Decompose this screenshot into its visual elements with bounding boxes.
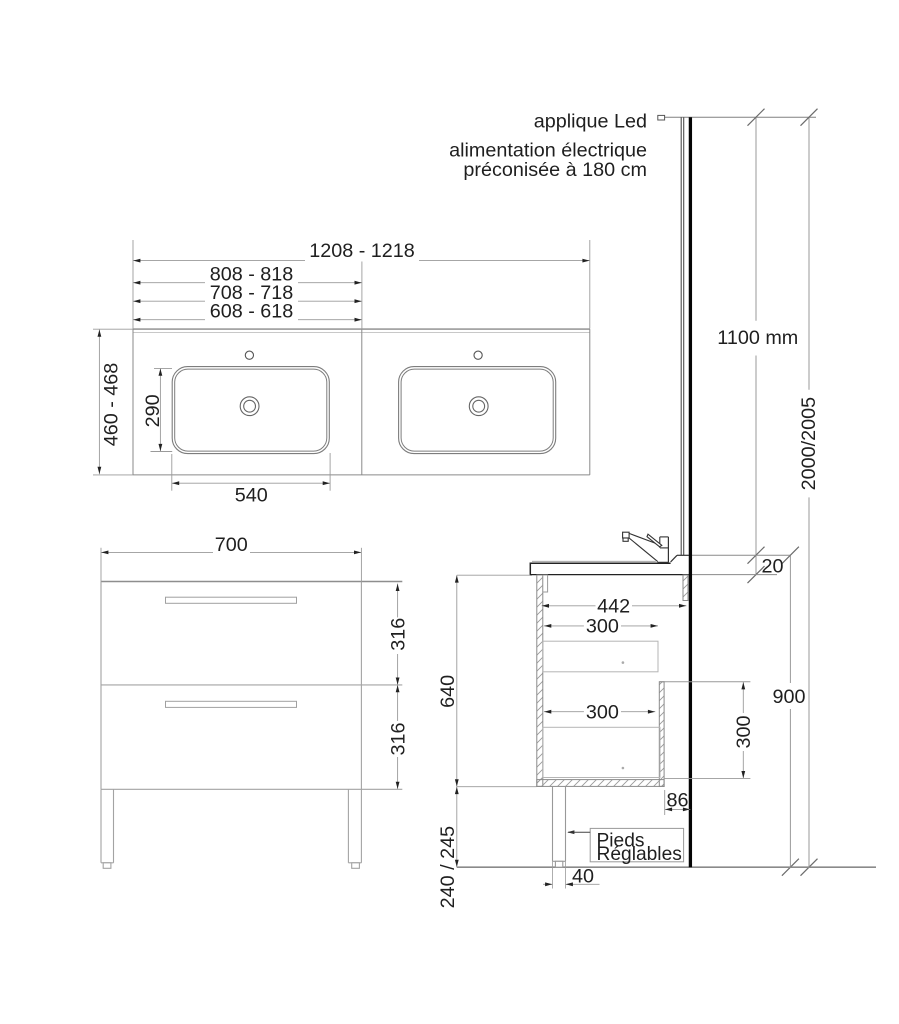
svg-text:Réglables: Réglables	[597, 844, 682, 865]
svg-text:240 / 245: 240 / 245	[437, 826, 459, 909]
svg-text:300: 300	[586, 701, 619, 723]
svg-text:300: 300	[586, 616, 619, 638]
svg-text:900: 900	[772, 686, 805, 708]
svg-text:2000/2005: 2000/2005	[798, 397, 820, 491]
svg-text:1208 - 1218: 1208 - 1218	[309, 240, 415, 262]
svg-text:préconisée à 180 cm: préconisée à 180 cm	[463, 159, 647, 181]
svg-text:1100 mm: 1100 mm	[717, 327, 798, 349]
svg-text:608 - 618: 608 - 618	[210, 301, 294, 323]
svg-text:316: 316	[387, 722, 409, 755]
svg-text:316: 316	[387, 618, 409, 651]
svg-text:700: 700	[215, 534, 248, 556]
svg-text:460 - 468: 460 - 468	[101, 363, 123, 447]
svg-text:290: 290	[142, 394, 164, 427]
svg-text:86: 86	[666, 789, 688, 811]
svg-text:40: 40	[572, 866, 594, 888]
svg-text:442: 442	[597, 595, 630, 617]
svg-text:applique Led: applique Led	[534, 111, 647, 133]
svg-text:540: 540	[235, 484, 268, 506]
svg-text:640: 640	[437, 675, 459, 708]
svg-text:300: 300	[733, 715, 755, 748]
